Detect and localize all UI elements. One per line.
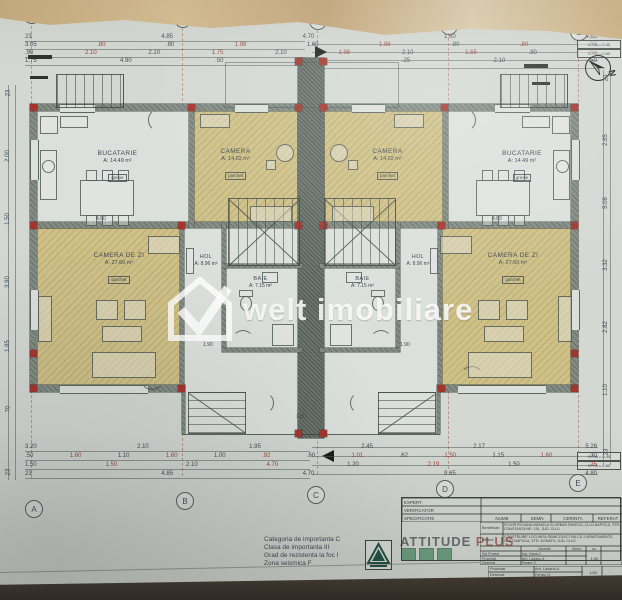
room-name: BUCATARIE: [80, 150, 155, 158]
room-area: A: 27.60 m²: [74, 260, 164, 267]
column: [30, 222, 37, 229]
window: [571, 290, 580, 330]
column: [320, 104, 327, 111]
window: [30, 140, 39, 180]
furniture-desk: [394, 114, 424, 128]
dimension-value: 70: [5, 405, 11, 412]
staff-name: Feraru O.: [520, 560, 567, 565]
furniture-chair: [118, 215, 129, 226]
wall: [222, 222, 226, 352]
note-line: Grad de rezistenta la foc I: [264, 552, 374, 560]
dimension-column-right: 232.855.083.322.821.1023: [599, 75, 613, 455]
column: [571, 222, 578, 229]
toilet: [240, 296, 252, 311]
dimension-value: 23: [603, 75, 609, 82]
dimension-value: 1.20: [347, 462, 359, 468]
room-name: BAIE: [340, 276, 385, 283]
column: [571, 385, 578, 392]
column: [178, 385, 185, 392]
title-block-specificatie: SPECIFICATIE: [402, 514, 482, 522]
furniture-armchair: [478, 300, 500, 320]
dimension-value: .62: [400, 453, 408, 459]
room-area: A: 14.02 m²: [198, 156, 273, 163]
wall: [437, 388, 440, 434]
room-label-camera-left: CAMERA A: 14.02 m² parchet: [198, 148, 273, 183]
column: [30, 104, 37, 111]
window: [571, 140, 580, 180]
dimension-value: 1.65: [465, 50, 477, 56]
dimension-value: .92: [262, 453, 270, 459]
column: [438, 222, 445, 229]
shower: [272, 324, 294, 346]
title-block-semn: SEMN: [520, 514, 552, 522]
window: [60, 385, 148, 394]
dimension-value: 3.90: [5, 277, 11, 289]
room-area: A: 27.60 m²: [468, 260, 558, 267]
furniture-sink: [42, 160, 55, 173]
dimension-value: 2.19: [428, 462, 440, 468]
dimension-value: 1.00: [214, 453, 226, 459]
column: [571, 104, 578, 111]
door-arc: [252, 392, 274, 414]
dimension-value: 1.15: [492, 453, 504, 459]
window-mark: [28, 55, 52, 59]
interior-dim: 1.80: [296, 414, 306, 420]
dimension-row: 1.501.502.104.701.202.191.50.25: [25, 462, 597, 468]
grid-bubble-a-bottom: A: [25, 500, 43, 518]
room-finish: gresie: [108, 174, 126, 182]
room-label-baie-right: BAIE A: 7.15 m²: [340, 276, 385, 289]
dimension-value: 4.90: [120, 58, 132, 64]
dimension-value: 1.50: [106, 462, 118, 468]
wall: [396, 222, 400, 352]
room-name: BAIE: [238, 276, 283, 283]
interior-dim: 1.90: [400, 342, 410, 348]
furniture-coffee-table: [484, 326, 524, 342]
dimension-value: 1.50: [444, 453, 456, 459]
room-name: BUCATARIE: [482, 150, 562, 158]
room-label-camera-right: CAMERA A: 14.02 m² parchet: [350, 148, 425, 183]
column: [438, 385, 445, 392]
dimension-column-left: 232.001.503.901.857023: [1, 90, 15, 475]
note-line: Clasa de importanta III: [264, 544, 374, 552]
furniture-table: [80, 180, 134, 216]
dimension-value: 2.10: [275, 50, 287, 56]
room-label-hol-left: HOL A: 8.96 m²: [186, 254, 226, 267]
title-block-cerinta: CERINTA: [550, 514, 594, 522]
dimension-line: [15, 85, 16, 480]
column: [320, 58, 327, 65]
dimension-value: 1.10: [118, 453, 130, 459]
room-finish: gresie: [513, 174, 531, 182]
dimension-value: 2.10: [402, 50, 414, 56]
furniture-chair: [514, 215, 525, 226]
dimension-value: 23: [25, 471, 32, 477]
dimension-value: 1.95: [249, 444, 261, 450]
door-arc: [148, 108, 172, 132]
title-block-cell: [480, 506, 622, 514]
dimension-row: 234.854.701.604.65: [25, 34, 597, 40]
dimension-value: 5.28: [585, 444, 597, 450]
wall: [189, 104, 194, 228]
furniture-armchair: [124, 300, 146, 320]
section-marker: [315, 46, 327, 58]
room-label-baie-left: BAIE A: 7.15 m²: [238, 276, 283, 289]
dimension-value: 2.85: [603, 134, 609, 146]
note-line: Categoria de importanta C: [264, 536, 374, 544]
elevation-tag-cta: C.T.A.=-0.45: [577, 40, 621, 49]
dimension-value: .90: [529, 50, 537, 56]
room-name: CAMERA DE ZI: [468, 252, 558, 260]
dimension-value: 1.98: [379, 42, 391, 48]
room-area: A: 7.15 m²: [340, 283, 385, 289]
door-arc: [370, 330, 392, 352]
column: [30, 350, 37, 357]
room-label-living-right: CAMERA DE ZI A: 27.60 m² parchet: [468, 252, 558, 287]
stair-cross: [189, 393, 245, 433]
stair-cross: [379, 394, 435, 434]
furniture-counter: [522, 116, 550, 128]
wall: [443, 104, 448, 228]
door-arc: [452, 108, 476, 132]
column: [320, 430, 327, 437]
dimension-value: 4.80: [585, 471, 597, 477]
wall: [222, 348, 302, 352]
furniture-armchair: [506, 300, 528, 320]
dimension-value: .25: [589, 462, 597, 468]
stairs-terrace-right: [378, 392, 436, 434]
door-arc: [350, 392, 372, 414]
interior-dim: 4.60: [96, 216, 106, 222]
interior-dim: 4.60: [492, 216, 502, 222]
dimension-value: 1.85: [5, 340, 11, 352]
title-block-expert: EXPERT: [402, 498, 482, 506]
architect-logo-box: [365, 540, 392, 570]
dimension-row: 234.854.709.654.80: [25, 471, 597, 477]
dimension-value: 1.10: [603, 384, 609, 396]
room-label-kitchen-right: BUCATARIE A: 14.49 m² gresie: [482, 150, 562, 185]
dimension-value: 1.60: [540, 453, 552, 459]
obiect-text: CONSTRUIRE LOCUINTA SEMICOLECTIVA CU 2 A…: [502, 534, 622, 546]
dimension-value: 1.60: [70, 453, 82, 459]
room-name: HOL: [186, 254, 226, 261]
furniture-round-table: [330, 144, 348, 162]
grid-bubble-d-bottom: D: [436, 480, 454, 498]
column: [571, 350, 578, 357]
window: [235, 104, 268, 113]
dimension-value: 1.50: [25, 462, 37, 468]
room-area: A: 14.02 m²: [350, 156, 425, 163]
room-area: A: 8.96 m²: [398, 261, 438, 267]
dimension-value: 3.32: [603, 259, 609, 271]
column: [30, 385, 37, 392]
dimension-value: .80: [520, 42, 528, 48]
furniture-sofa: [468, 352, 532, 378]
dimension-row: 3.05.80.801.981.601.98.80.80.55: [25, 42, 597, 48]
room-area: A: 7.15 m²: [238, 283, 283, 289]
dimension-value: 2.10: [85, 50, 97, 56]
furniture-wardrobe: [332, 206, 374, 222]
room-name: CAMERA DE ZI: [74, 252, 164, 260]
exterior-stairs: [500, 74, 568, 108]
room-area: A: 14.49 m²: [482, 158, 562, 165]
dimension-value: 2.00: [5, 150, 11, 162]
dimension-value: 2.10: [137, 444, 149, 450]
dimension-line: [25, 469, 310, 470]
furniture-counter: [60, 116, 88, 128]
window: [352, 104, 385, 113]
dimension-value: 4.70: [267, 462, 279, 468]
grid-bubble-c-bottom: C: [307, 486, 325, 504]
title-block-nume: NUME: [480, 514, 522, 522]
furniture-fridge: [552, 116, 570, 134]
dimension-value: 9.65: [444, 471, 456, 477]
dimension-value: .80: [97, 42, 105, 48]
room-area: A: 8.96 m²: [186, 261, 226, 267]
room-finish: parchet: [377, 172, 398, 180]
furniture-tv-unit: [38, 296, 52, 342]
stairs-terrace-left: [188, 392, 246, 434]
furniture-wardrobe: [250, 206, 292, 222]
furniture-table: [476, 180, 530, 216]
dimension-value: .30: [589, 453, 597, 459]
dimension-value: 2.10: [148, 50, 160, 56]
dimension-value: 4.85: [161, 471, 173, 477]
title-block-cell: [600, 551, 622, 565]
party-wall: [298, 58, 324, 438]
dimension-value: 5.08: [603, 197, 609, 209]
furniture-sofa: [92, 352, 156, 378]
column: [178, 222, 185, 229]
door-arc: [232, 330, 254, 352]
toilet-tank: [239, 290, 253, 297]
furniture-armchair: [96, 300, 118, 320]
toilet: [372, 296, 384, 311]
room-name: HOL: [398, 254, 438, 261]
window-mark: [524, 64, 548, 68]
window-mark: [30, 76, 48, 79]
dimension-value: .80: [451, 42, 459, 48]
column: [441, 104, 448, 111]
dimension-value: .50: [215, 58, 223, 64]
furniture-fridge: [40, 116, 58, 134]
wall: [180, 222, 184, 392]
dimension-value: 2.10: [186, 462, 198, 468]
dimension-value: 3.20: [25, 444, 37, 450]
title-block-cell: [480, 498, 622, 506]
room-label-hol-right: HOL A: 8.96 m²: [398, 254, 438, 267]
room-finish: parchet: [502, 276, 523, 284]
column: [295, 430, 302, 437]
dimension-value: 23: [5, 90, 11, 97]
wall: [182, 388, 185, 434]
column: [188, 104, 195, 111]
dimension-value: 1.60: [166, 453, 178, 459]
room-area: A: 14.49 m²: [80, 158, 155, 165]
title-block-verificator: VERIFICATOR: [402, 506, 482, 514]
dimension-value: 1.01: [352, 453, 364, 459]
dimension-row: .902.102.101.752.101.982.101.65.90.55: [25, 50, 597, 56]
room-name: CAMERA: [350, 148, 425, 156]
dimension-value: 1.50: [508, 462, 520, 468]
dimension-line: [25, 478, 310, 479]
floor-plan-photo: 234.854.701.604.65 3.05.80.801.981.601.9…: [0, 0, 622, 600]
dimension-value: 1.98: [235, 42, 247, 48]
dimension-value: .80: [166, 42, 174, 48]
paper-edge: [0, 562, 480, 573]
grid-bubble-e-bottom: E: [569, 474, 587, 492]
dimension-value: 1.98: [338, 50, 350, 56]
room-label-living-left: CAMERA DE ZI A: 27.60 m² parchet: [74, 252, 164, 287]
dimension-value: 2.82: [603, 321, 609, 333]
room-label-kitchen-left: BUCATARIE A: 14.49 m² gresie: [80, 150, 155, 185]
beneficiar-label: Beneficiar:: [480, 522, 504, 534]
dimension-row: .501.601.101.601.00.92.601.01.621.501.15…: [25, 453, 597, 459]
interior-dim: 1.90: [203, 342, 213, 348]
dimension-value: 4.70: [303, 34, 315, 40]
staff-sign: [565, 560, 587, 565]
room-finish: parchet: [108, 276, 129, 284]
column: [295, 58, 302, 65]
dimension-value: 1.50: [5, 213, 11, 225]
room-name: CAMERA: [198, 148, 273, 156]
column: [295, 104, 302, 111]
toilet-tank: [371, 290, 385, 297]
furniture-counter: [40, 150, 57, 200]
dimension-line: [25, 451, 310, 452]
terrace-edge: [182, 434, 440, 435]
shower: [330, 324, 352, 346]
dimension-value: 23: [603, 449, 609, 456]
dimension-line: [25, 460, 310, 461]
grid-bubble-b-bottom: B: [176, 492, 194, 510]
dimension-row: 3.202.101.952.452.175.28: [25, 444, 597, 450]
staff-role: Desenat: [480, 560, 522, 565]
grid-axis-e: [578, 39, 579, 463]
dimension-value: .60: [307, 453, 315, 459]
beneficiar-text: FICIOR ROXANA-MIHAELA SI URBAN RAVECA, C…: [502, 522, 622, 534]
dimension-value: .50: [25, 453, 33, 459]
obiect-label: Obiect:: [480, 534, 504, 546]
dimension-value: 2.45: [361, 444, 373, 450]
dimension-value: 2.10: [494, 58, 506, 64]
furniture-tv-unit: [558, 296, 572, 342]
exterior-stairs: [56, 74, 124, 108]
dimension-value: 1.75: [212, 50, 224, 56]
porch-outline: [225, 62, 399, 108]
room-finish: parchet: [225, 172, 246, 180]
furniture-desk: [200, 114, 230, 128]
dimension-value: 23: [5, 469, 11, 476]
dimension-value: 4.85: [161, 34, 173, 40]
furniture-coffee-table: [102, 326, 142, 342]
title-block-referat: REFERAT: [592, 514, 622, 522]
dimension-value: .25: [402, 58, 410, 64]
furniture-round-table: [276, 144, 294, 162]
dimension-value: 4.70: [303, 471, 315, 477]
dimension-value: 2.17: [473, 444, 485, 450]
